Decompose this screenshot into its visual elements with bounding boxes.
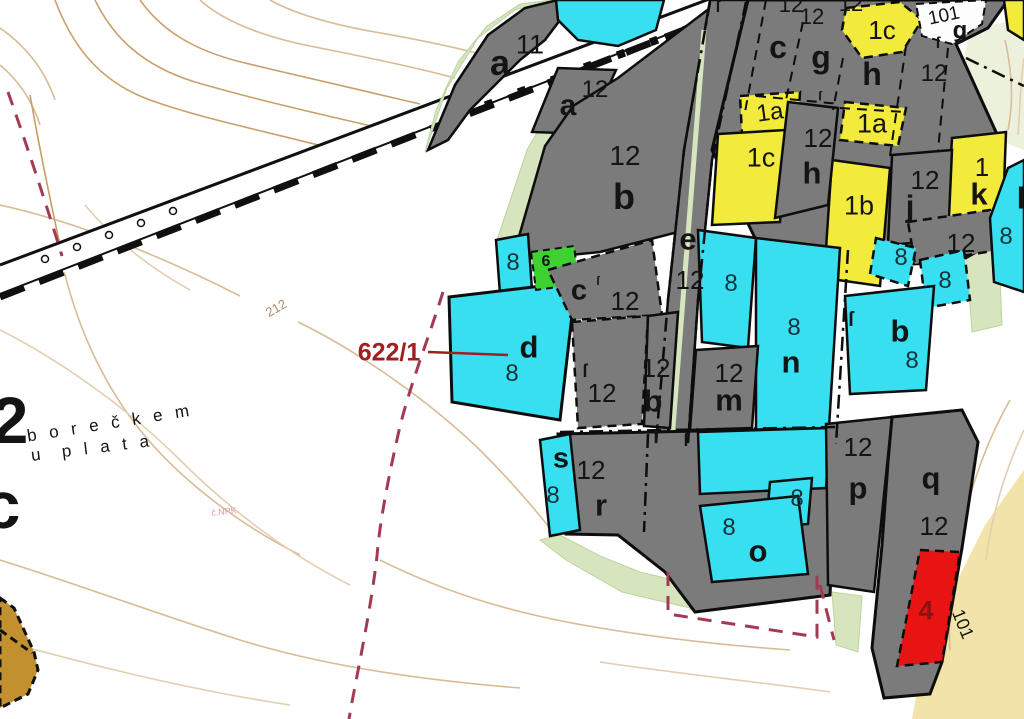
parcel-letter-l: l: [1017, 183, 1024, 214]
parcel-letter-h-mid: h: [803, 158, 822, 189]
parcel-number-8-o: 8: [722, 516, 735, 540]
parcel-letter-r: r: [595, 490, 607, 521]
parcel-number-12-q: 12: [920, 513, 949, 539]
parcel-label-6-green: 6: [542, 254, 551, 270]
parcel-number-101-top: 101: [927, 3, 962, 28]
parcel-number-12-c: 12: [611, 288, 640, 314]
boundary-marker-8: ſ: [596, 275, 599, 287]
parcel-number-12-e: 12: [676, 267, 705, 293]
parcel-number-12-top-b: 12: [839, 0, 863, 15]
parcel-letter-d: d: [520, 332, 539, 363]
parcel-number-12-b-top: 12: [609, 142, 640, 170]
parcel-letter-n: n: [782, 347, 801, 378]
parcel-letter-b-right: b: [891, 316, 910, 347]
parcel-letter-a12: a: [560, 91, 577, 121]
parcel-number-8-e: 8: [724, 272, 737, 296]
parcel-number-12-h: 12: [804, 125, 833, 151]
parcel-letter-p: p: [849, 473, 868, 504]
parcel-label-1c-mid: 1c: [747, 145, 776, 172]
parcel-number-12-g2: 12: [588, 380, 617, 406]
parcel-number-8-b-right: 8: [905, 349, 918, 373]
parcel-letter-a11: a: [490, 45, 510, 81]
parcel-number-12-top-a: 12: [779, 0, 803, 16]
parcel-letter-c-top: c: [769, 31, 787, 63]
parcel-number-12-j: 12: [911, 167, 940, 193]
parcel-number-12-p: 12: [844, 434, 873, 460]
parcel-letter-o: o: [749, 536, 768, 567]
parcel-letter-q: q: [922, 463, 941, 494]
boundary-marker-3: ſ: [683, 431, 688, 449]
cadastral-map: a11a1212bcg1212121c101gh121a121a1ch1b12j…: [0, 0, 1024, 719]
parcel-number-8-d: 8: [505, 362, 518, 386]
parcel-number-8-edge: 8: [999, 225, 1012, 249]
parcel-number-12-top-c: 12: [800, 6, 824, 28]
parcel-number-12-right-top: 12: [921, 62, 948, 86]
boundary-marker-2: ſ: [653, 428, 658, 446]
parcel-letter-k: k: [970, 179, 987, 210]
parcel-letter-j: j: [906, 191, 915, 222]
parcel-number-12-m: 12: [715, 360, 744, 386]
parcel-number-12-a12: 12: [582, 78, 609, 102]
label-layer: a11a1212bcg1212121c101gh121a121a1ch1b12j…: [0, 0, 1024, 719]
parcel-letter-e: e: [679, 224, 696, 255]
boundary-marker-7: ſ: [818, 90, 822, 103]
parcel-number-12-r: 12: [577, 457, 606, 483]
parcel-number-8-left: 8: [506, 251, 519, 275]
parcel-number-4-red: 4: [918, 598, 933, 625]
parcel-label-1c-top: 1c: [868, 17, 895, 43]
parcel-number-8-s: 8: [546, 484, 559, 508]
parcel-letter-m: m: [715, 385, 743, 416]
parcel-number-8-r2: 8: [938, 269, 951, 293]
parcel-letter-g-101: g: [953, 19, 968, 43]
parcel-letter-g-top: g: [811, 41, 831, 73]
parcel-number-8-r1: 8: [894, 246, 907, 270]
parcel-label-1b: 1b: [844, 193, 874, 220]
parcel-letter-s: s: [553, 445, 569, 474]
parcel-number-8-strip: 8: [790, 487, 803, 511]
boundary-marker-6: ſ: [716, 0, 720, 16]
boundary-marker-4: ſ: [848, 310, 854, 330]
callout-622-1: 622/1: [358, 341, 421, 366]
parcel-letter-b-top: b: [613, 179, 635, 215]
parcel-letter-h-top: h: [862, 58, 882, 90]
parcel-number-11: 11: [516, 32, 544, 59]
parcel-number-101-right: 101: [949, 607, 977, 642]
parcel-number-1-k: 1: [975, 154, 989, 180]
boundary-marker-5: ſ: [936, 36, 940, 52]
boundary-marker-1: ſ: [582, 362, 587, 380]
parcel-number-12-b-mid: 12: [642, 355, 671, 381]
edge-letter-c: c: [0, 472, 20, 538]
parcel-label-1a-left: 1a: [755, 99, 785, 126]
place-name-line2: u p l a t a: [30, 432, 154, 464]
contour-label-212: 212: [263, 297, 288, 319]
parcel-letter-c-mid: c: [571, 277, 587, 306]
note-pink: č.NPK: [211, 506, 237, 518]
parcel-number-8-n: 8: [787, 316, 800, 340]
parcel-number-12-right: 12: [947, 230, 976, 256]
place-name-line1: b o r e č k e m: [26, 401, 194, 444]
edge-number-2: 2: [0, 387, 28, 453]
parcel-label-1a-right: 1a: [857, 111, 887, 138]
parcel-letter-b-mid: b: [644, 386, 663, 417]
